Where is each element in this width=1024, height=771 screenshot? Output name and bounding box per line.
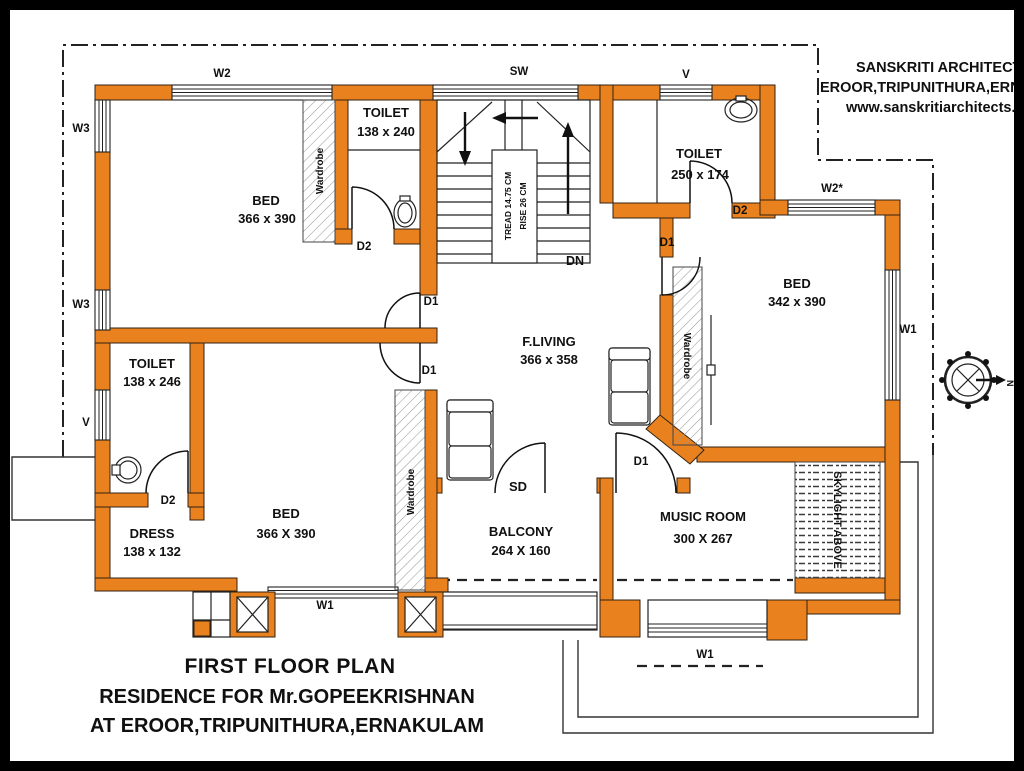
window-w1-music bbox=[648, 600, 767, 637]
column-left bbox=[230, 592, 275, 637]
floor-plan-page: Wardrobe Wardrobe Wardrobe SKYLIGHT ABOV… bbox=[0, 0, 1024, 771]
room-bed-top-left-dims: 366 x 390 bbox=[238, 211, 296, 226]
label-w3-lower: W3 bbox=[72, 299, 89, 311]
sofa-living-right bbox=[609, 348, 650, 425]
architect-address: EROOR,TRIPUNITHURA,ERNAK bbox=[820, 80, 1024, 96]
room-bed-bottom-dims: 366 X 390 bbox=[256, 526, 315, 541]
stair-tread-note: TREAD 14.75 CM bbox=[503, 172, 513, 241]
architect-website: www.sanskritiarchitects.in bbox=[845, 100, 1024, 116]
room-music: MUSIC ROOM bbox=[660, 509, 746, 524]
room-toilet-left-dims: 138 x 246 bbox=[123, 374, 181, 389]
room-bed-right: BED bbox=[783, 276, 810, 291]
window-w1-bottom-left bbox=[268, 587, 398, 598]
door-d1-bed-top-left bbox=[385, 293, 420, 328]
label-d2-toilet-top-left: D2 bbox=[357, 241, 372, 253]
architect-block: SANSKRITI ARCHITECTS EROOR,TRIPUNITHURA,… bbox=[820, 60, 1024, 116]
label-sw: SW bbox=[510, 66, 529, 78]
room-balcony-dims: 264 X 160 bbox=[491, 543, 550, 558]
label-v-left: V bbox=[82, 417, 90, 429]
room-toilet-top-left: TOILET bbox=[363, 105, 409, 120]
label-w2star: W2* bbox=[821, 183, 843, 195]
drawing-title: FIRST FLOOR PLAN RESIDENCE FOR Mr.GOPEEK… bbox=[90, 655, 484, 737]
room-toilet-top-right-dims: 250 x 174 bbox=[671, 167, 730, 182]
label-d1-bed-top-left: D1 bbox=[424, 296, 439, 308]
window-w3-lower-left bbox=[95, 290, 110, 330]
wardrobes: Wardrobe Wardrobe Wardrobe SKYLIGHT ABOV… bbox=[303, 100, 880, 590]
label-d1-bed-bottom: D1 bbox=[422, 365, 437, 377]
wardrobe-label: Wardrobe bbox=[681, 333, 692, 380]
room-bed-right-dims: 342 x 390 bbox=[768, 294, 826, 309]
skylight-above: SKYLIGHT ABOVE bbox=[795, 462, 880, 578]
room-bed-top-left: BED bbox=[252, 193, 279, 208]
window-w2star-right bbox=[788, 200, 875, 215]
wardrobe-label: Wardrobe bbox=[315, 147, 326, 194]
room-dress-dims: 138 x 132 bbox=[123, 544, 181, 559]
window-v-top bbox=[660, 85, 712, 100]
label-v-top: V bbox=[682, 69, 690, 81]
title-line1: FIRST FLOOR PLAN bbox=[185, 655, 396, 678]
label-d1-music: D1 bbox=[634, 456, 649, 468]
architect-name: SANSKRITI ARCHITECTS bbox=[856, 60, 1024, 76]
furniture bbox=[447, 348, 650, 480]
label-d2-toilet-left: D2 bbox=[161, 495, 176, 507]
column-right bbox=[398, 592, 443, 637]
balcony-parapet bbox=[437, 592, 597, 630]
room-toilet-top-right: TOILET bbox=[676, 146, 722, 161]
washbasin-toilet-top-left bbox=[394, 196, 416, 227]
room-music-dims: 300 X 267 bbox=[673, 531, 732, 546]
title-line3: AT EROOR,TRIPUNITHURA,ERNAKULAM bbox=[90, 715, 484, 737]
window-w2-top bbox=[172, 85, 332, 100]
label-w1-bottom-left: W1 bbox=[316, 600, 334, 612]
label-w2: W2 bbox=[213, 68, 230, 80]
porch-steps bbox=[193, 592, 230, 637]
label-d2-toilet-top-right: D2 bbox=[733, 205, 748, 217]
columns bbox=[193, 592, 443, 637]
label-w3-upper: W3 bbox=[72, 123, 89, 135]
room-bed-bottom: BED bbox=[272, 506, 299, 521]
window-sw-top bbox=[433, 85, 578, 100]
window-v-left bbox=[95, 390, 110, 440]
label-w1-east: W1 bbox=[899, 324, 917, 336]
wardrobe-bottom-left: Wardrobe bbox=[395, 390, 425, 590]
room-dress: DRESS bbox=[130, 526, 175, 541]
wardrobe-bed-right: Wardrobe bbox=[673, 267, 715, 445]
window-w3-upper-left bbox=[95, 100, 110, 152]
wardrobe-label: Wardrobe bbox=[406, 468, 417, 515]
floor-plan-drawing: Wardrobe Wardrobe Wardrobe SKYLIGHT ABOV… bbox=[0, 0, 1024, 771]
washbasin-toilet-left bbox=[112, 457, 141, 483]
stair-down-label: DN bbox=[566, 254, 584, 268]
north-label: N bbox=[1005, 380, 1015, 387]
door-d1-bed-bottom bbox=[380, 343, 420, 383]
label-d1-bed-right: D1 bbox=[660, 237, 675, 249]
room-toilet-top-left-dims: 138 x 240 bbox=[357, 124, 415, 139]
room-toilet-left: TOILET bbox=[129, 356, 175, 371]
label-sd: SD bbox=[509, 479, 527, 494]
staircase: TREAD 14.75 CM RISE 26 CM DN bbox=[437, 100, 590, 268]
door-d2-toilet-top-left bbox=[352, 187, 394, 229]
door-d2-toilet-left bbox=[146, 451, 188, 493]
room-living: F.LIVING bbox=[522, 334, 575, 349]
skylight-label: SKYLIGHT ABOVE bbox=[831, 471, 843, 568]
window-w1-east bbox=[885, 270, 900, 400]
title-line2: RESIDENCE FOR Mr.GOPEEKRISHNAN bbox=[99, 686, 475, 708]
sofa-living-left bbox=[447, 400, 493, 480]
label-w1-music: W1 bbox=[696, 649, 714, 661]
north-compass-icon: N bbox=[939, 351, 1015, 409]
room-balcony: BALCONY bbox=[489, 524, 554, 539]
wardrobe-top-left: Wardrobe bbox=[303, 100, 335, 242]
room-living-dims: 366 x 358 bbox=[520, 352, 578, 367]
stair-rise-note: RISE 26 CM bbox=[518, 182, 528, 229]
